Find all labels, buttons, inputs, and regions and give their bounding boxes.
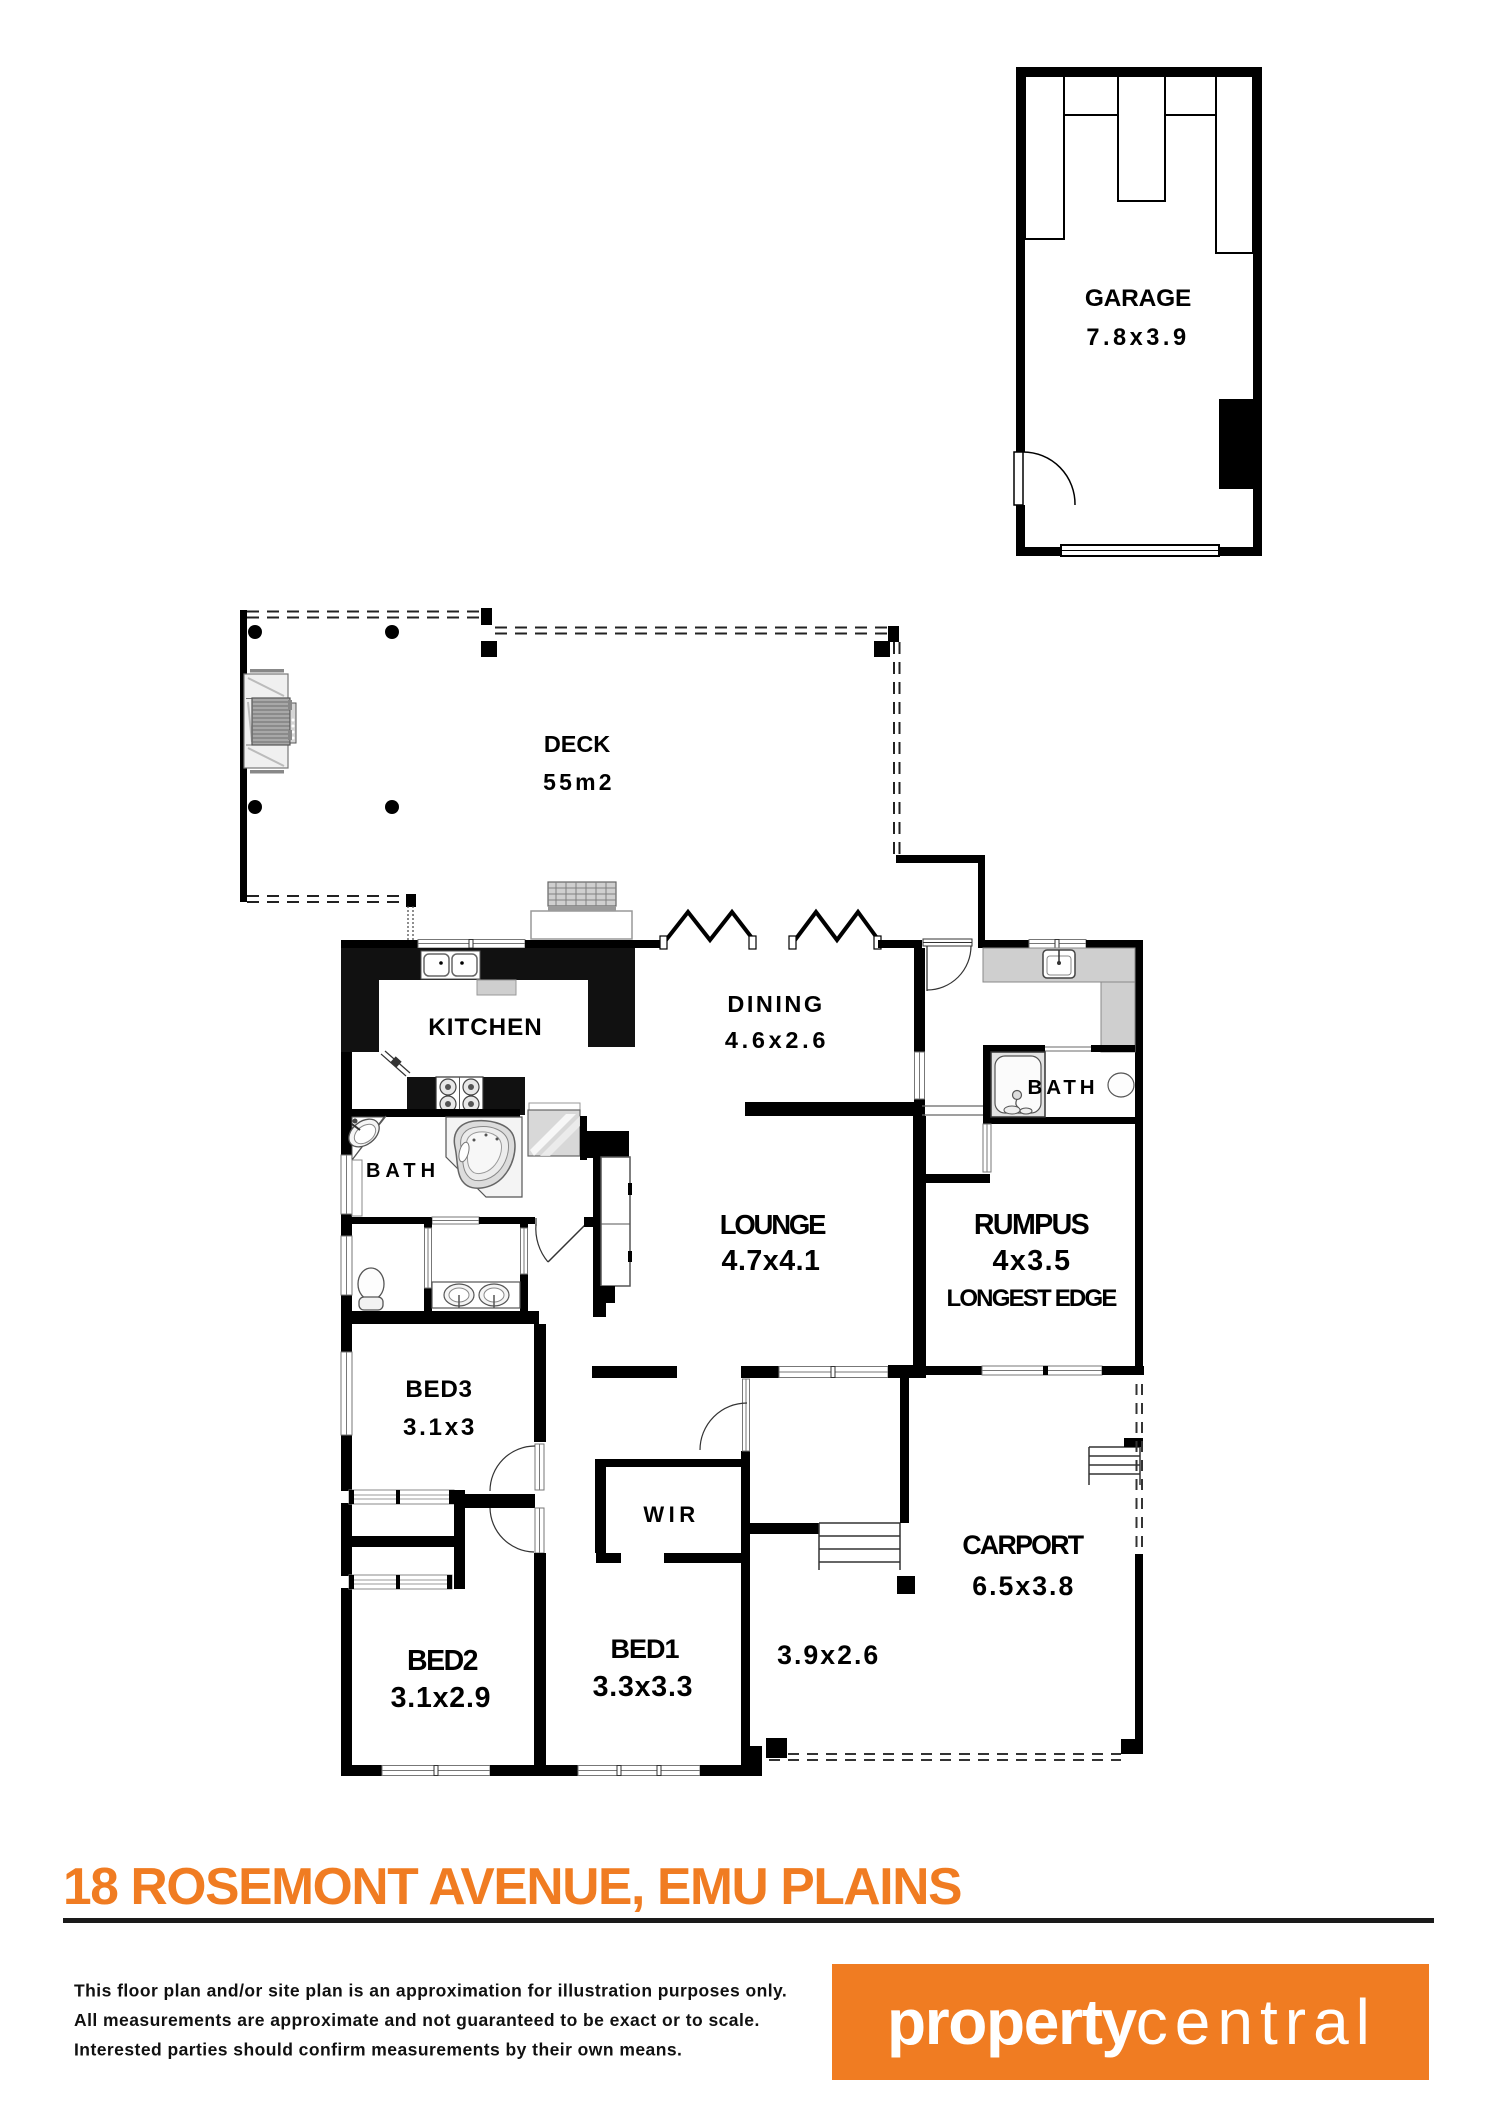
svg-text:BATH: BATH <box>366 1160 440 1182</box>
svg-text:55m2: 55m2 <box>543 769 615 795</box>
svg-text:6.5x3.8: 6.5x3.8 <box>972 1571 1075 1601</box>
svg-text:GARAGE: GARAGE <box>1085 285 1191 312</box>
svg-text:DINING: DINING <box>727 991 824 1017</box>
svg-text:3.1x3: 3.1x3 <box>403 1414 477 1441</box>
svg-text:KITCHEN: KITCHEN <box>428 1014 543 1041</box>
svg-text:DECK: DECK <box>544 731 610 757</box>
svg-text:propertycentral: propertycentral <box>887 1986 1377 2058</box>
svg-text:BED2: BED2 <box>407 1645 478 1677</box>
svg-text:4.6x2.6: 4.6x2.6 <box>725 1027 829 1053</box>
svg-text:BATH: BATH <box>1027 1076 1098 1099</box>
svg-text:RUMPUS: RUMPUS <box>974 1209 1089 1241</box>
svg-text:18 ROSEMONT AVENUE, EMU PLAINS: 18 ROSEMONT AVENUE, EMU PLAINS <box>63 1857 961 1915</box>
svg-text:WIR: WIR <box>643 1502 699 1527</box>
svg-text:3.9x2.6: 3.9x2.6 <box>777 1640 880 1670</box>
svg-text:4x3.5: 4x3.5 <box>992 1245 1071 1277</box>
svg-text:LOUNGE: LOUNGE <box>720 1209 826 1240</box>
svg-text:All measurements are approxima: All measurements are approximate and not… <box>74 2010 760 2030</box>
svg-text:BED3: BED3 <box>405 1376 472 1403</box>
svg-text:CARPORT: CARPORT <box>962 1530 1084 1560</box>
svg-text:This floor plan and/or site pl: This floor plan and/or site plan is an a… <box>74 1981 787 2001</box>
svg-text:Interested parties should conf: Interested parties should confirm measur… <box>74 2039 682 2059</box>
svg-text:3.1x2.9: 3.1x2.9 <box>391 1682 492 1714</box>
svg-text:3.3x3.3: 3.3x3.3 <box>593 1671 694 1703</box>
svg-text:4.7x4.1: 4.7x4.1 <box>722 1245 821 1277</box>
svg-text:BED1: BED1 <box>610 1634 679 1664</box>
svg-text:LONGEST EDGE: LONGEST EDGE <box>946 1285 1117 1312</box>
svg-text:7.8x3.9: 7.8x3.9 <box>1086 325 1189 351</box>
